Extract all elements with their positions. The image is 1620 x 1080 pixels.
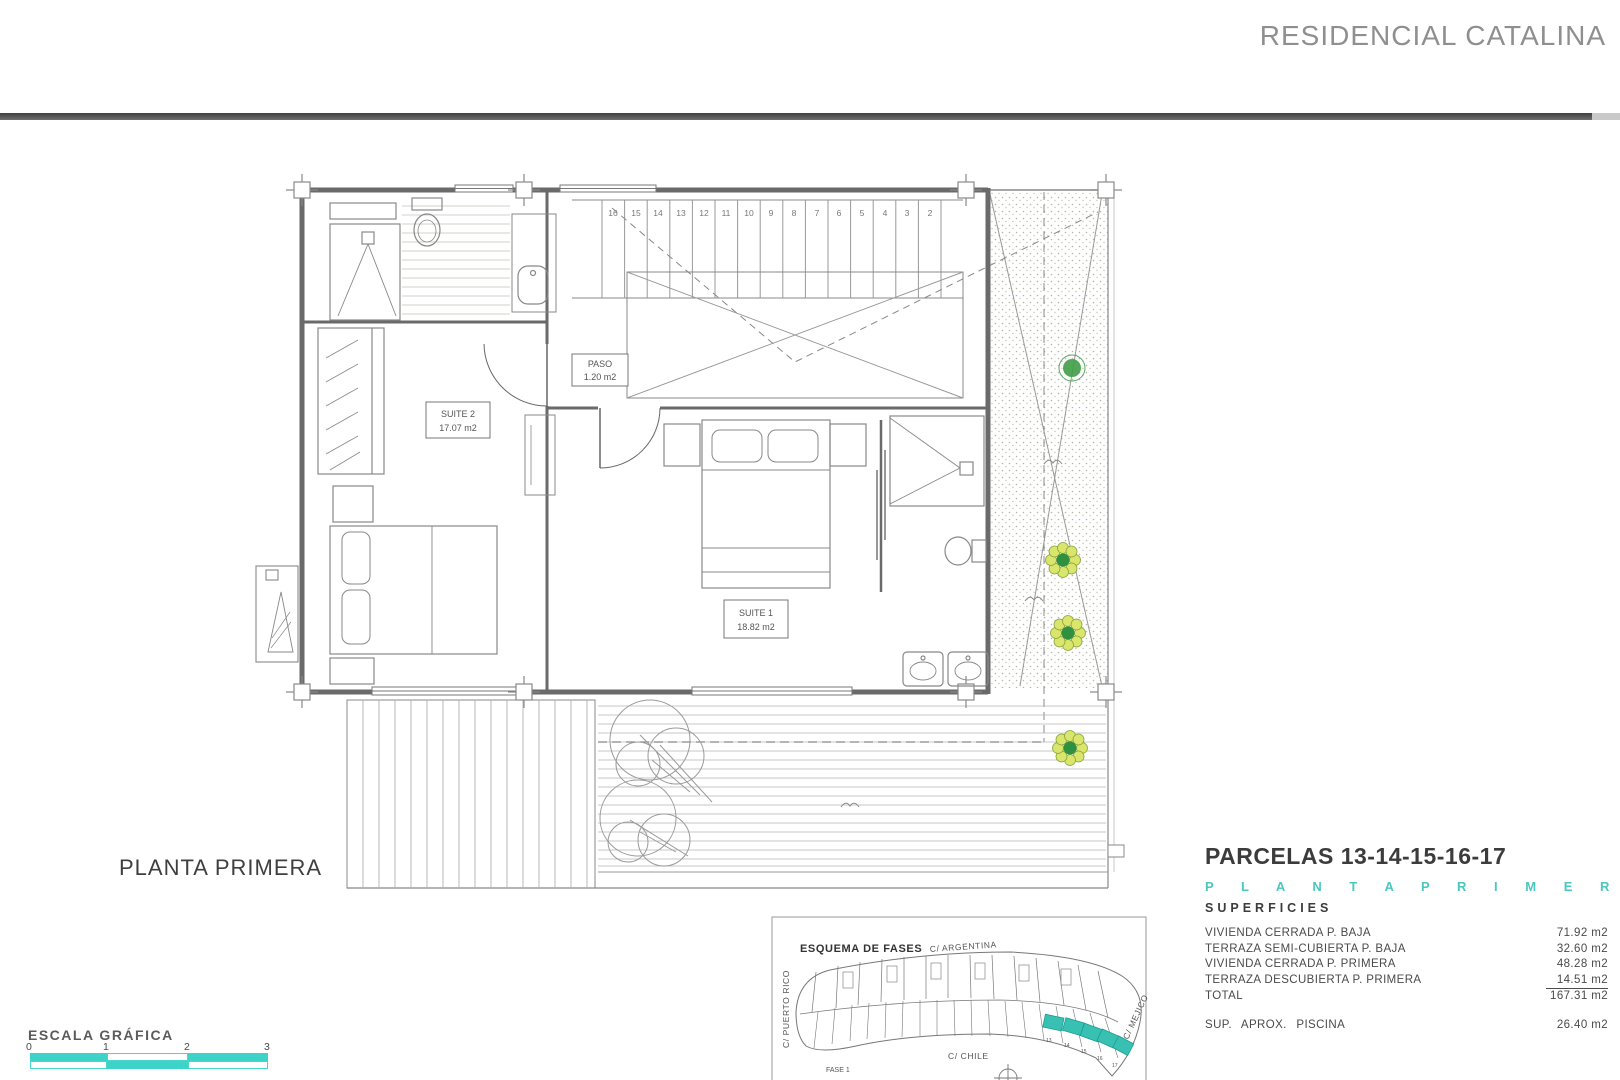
desk-icon bbox=[525, 415, 555, 495]
svg-text:15: 15 bbox=[631, 208, 641, 218]
suite1-area: 18.82 m2 bbox=[737, 622, 775, 632]
walls bbox=[300, 188, 988, 694]
svg-text:7: 7 bbox=[815, 208, 820, 218]
toilet-icon bbox=[412, 198, 442, 246]
scale-tick-0: 0 bbox=[26, 1041, 32, 1053]
parcels-title: PARCELAS 13-14-15-16-17 bbox=[1205, 843, 1608, 870]
svg-text:3: 3 bbox=[905, 208, 910, 218]
step-mark bbox=[1108, 845, 1124, 857]
pergola-strip bbox=[347, 700, 595, 888]
info-panel: PARCELAS 13-14-15-16-17 P L A N T A P R … bbox=[1205, 843, 1608, 1033]
planter-icon bbox=[256, 566, 298, 662]
svg-text:12: 12 bbox=[699, 208, 709, 218]
svg-text:14: 14 bbox=[653, 208, 663, 218]
svg-text:10: 10 bbox=[744, 208, 754, 218]
scale-tick-1: 1 bbox=[103, 1041, 109, 1053]
toilet-icon bbox=[945, 537, 986, 565]
terrace-stipple bbox=[988, 188, 1114, 888]
deck-terrace bbox=[347, 706, 1108, 888]
page: RESIDENCIAL CATALINA bbox=[0, 0, 1620, 1080]
scale-label: ESCALA GRÁFICA bbox=[28, 1027, 174, 1043]
suite2-area: 17.07 m2 bbox=[439, 423, 477, 433]
suite2-room bbox=[318, 328, 555, 684]
superficies-heading: SUPERFICIES bbox=[1205, 901, 1608, 915]
scale-tick-2: 2 bbox=[184, 1041, 190, 1053]
pool-row: SUP. APROX. PISCINA 26.40 m2 bbox=[1205, 1018, 1608, 1034]
suite2-label: SUITE 2 bbox=[441, 409, 475, 419]
svg-text:4: 4 bbox=[883, 208, 888, 218]
plan-title: PLANTA PRIMERA bbox=[119, 855, 322, 881]
phase-label: FASE 1 bbox=[826, 1067, 850, 1074]
svg-text:14: 14 bbox=[1064, 1043, 1070, 1049]
svg-text:13: 13 bbox=[1046, 1038, 1052, 1044]
phases-inset: ESQUEMA DE FASES C/ ARGENTINA C/ PUERTO … bbox=[770, 915, 1148, 1080]
svg-text:5: 5 bbox=[860, 208, 865, 218]
suite1-room bbox=[664, 420, 866, 588]
table-row: TERRAZA SEMI-CUBIERTA P. BAJA 32.60 m2 bbox=[1205, 942, 1608, 958]
table-row: VIVIENDA CERRADA P. BAJA 71.92 m2 bbox=[1205, 926, 1608, 942]
paso-label: PASO bbox=[588, 359, 612, 369]
svg-text:11: 11 bbox=[722, 208, 731, 218]
bathroom-suite1 bbox=[890, 416, 988, 686]
tile-floor bbox=[402, 206, 510, 314]
bed-icon bbox=[330, 486, 497, 684]
street-puerto-rico: C/ PUERTO RICO bbox=[781, 970, 791, 1048]
svg-text:6: 6 bbox=[837, 208, 842, 218]
svg-text:16: 16 bbox=[1097, 1056, 1103, 1062]
scale-bar bbox=[30, 1053, 268, 1069]
paso-area: 1.20 m2 bbox=[584, 372, 617, 382]
void-cross bbox=[627, 272, 963, 398]
room-labels: SUITE 2 17.07 m2 PASO 1.20 m2 SUITE 1 18… bbox=[426, 354, 788, 638]
svg-text:8: 8 bbox=[792, 208, 797, 218]
shower-icon bbox=[890, 416, 984, 506]
table-row: VIVIENDA CERRADA P. PRIMERA 48.28 m2 bbox=[1205, 957, 1608, 973]
vanity-sink-icon bbox=[512, 214, 556, 312]
scale-tick-3: 3 bbox=[264, 1041, 270, 1053]
svg-text:13: 13 bbox=[676, 208, 686, 218]
svg-text:17: 17 bbox=[1112, 1063, 1118, 1069]
svg-text:2: 2 bbox=[928, 208, 933, 218]
street-chile: C/ CHILE bbox=[948, 1051, 989, 1061]
floor-label-teal: P L A N T A P R I M E R A bbox=[1205, 879, 1608, 894]
shower-icon bbox=[330, 224, 400, 320]
double-sink-icon bbox=[903, 652, 988, 686]
inset-title: ESQUEMA DE FASES bbox=[800, 943, 922, 955]
bed-icon bbox=[664, 420, 866, 588]
table-row: TOTAL 167.31 m2 bbox=[1205, 989, 1608, 1005]
svg-text:15: 15 bbox=[1081, 1049, 1087, 1055]
wardrobe-icon bbox=[318, 328, 384, 474]
superficies-table: VIVIENDA CERRADA P. BAJA 71.92 m2 TERRAZ… bbox=[1205, 926, 1608, 1033]
bathroom-suite2 bbox=[330, 198, 556, 320]
svg-text:9: 9 bbox=[769, 208, 774, 218]
suite1-label: SUITE 1 bbox=[739, 608, 773, 618]
table-row: TERRAZA DESCUBIERTA P. PRIMERA 14.51 m2 bbox=[1205, 973, 1608, 990]
